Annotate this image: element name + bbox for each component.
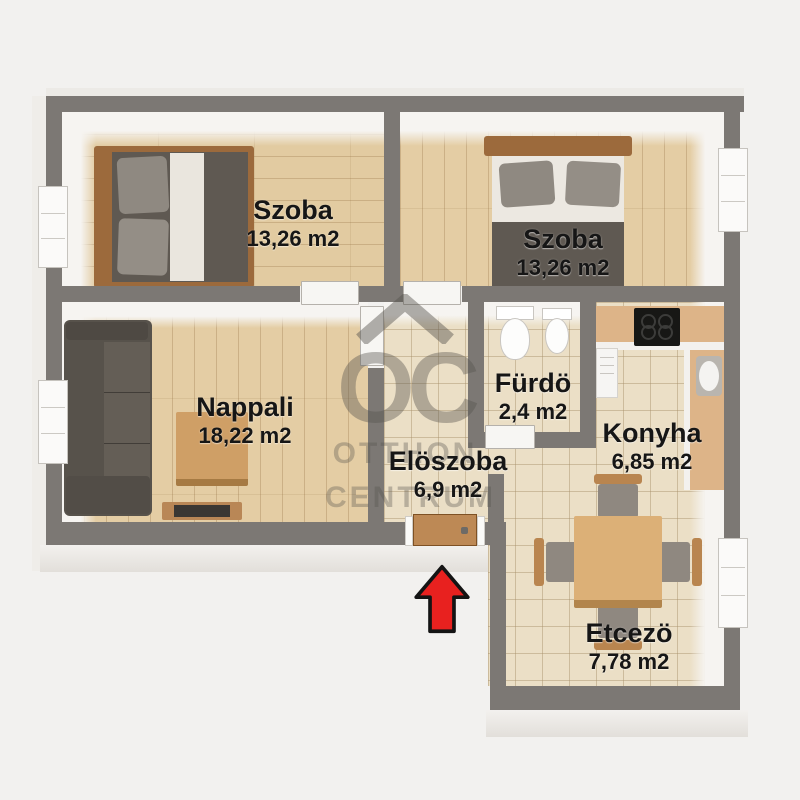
pillow [117,218,169,276]
door-bedroom-1 [301,281,359,305]
room-name: Szoba [203,195,383,225]
room-area: 6,9 m2 [362,476,534,504]
room-name: Elöszoba [362,446,534,476]
room-area: 13,26 m2 [203,225,383,253]
pillow [565,161,621,208]
sofa [64,320,152,516]
bed-headboard [484,136,632,156]
door-bedroom-2 [403,281,461,305]
room-name: Fürdö [472,368,594,398]
door-handle [461,527,468,534]
room-name: Nappali [155,392,335,422]
sink [696,356,722,396]
outer-wall-face [46,88,744,96]
room-area: 6,85 m2 [564,448,740,476]
chair-backrest [692,538,702,586]
pillow [499,160,556,208]
entrance-door-jamb [477,516,485,546]
room-area: 18,22 m2 [155,422,335,450]
sofa-chaise [66,476,150,514]
wall-left [46,96,62,545]
chair-backrest [534,538,544,586]
toilet-bowl [500,318,530,360]
cooktop [634,308,680,346]
window-dining-room [718,538,748,628]
burner [641,325,656,340]
wall-bedroom-divider [384,112,400,286]
outer-wall-face [486,710,748,737]
room-label-hallway: Elöszoba 6,9 m2 [362,446,534,504]
room-label-dining-room: Etcezö 7,78 m2 [541,618,717,676]
dining-table [574,516,662,608]
wall-dining-left [490,545,506,686]
room-area: 7,78 m2 [541,648,717,676]
sink-basin [699,361,719,391]
door-living-room [360,306,384,366]
wall-middle [358,286,404,302]
wall-middle [462,286,724,302]
room-label-living-room: Nappali 18,22 m2 [155,392,335,450]
window-living-room [38,380,68,464]
vent-line [600,357,614,358]
bidet [542,308,572,356]
range-hood [596,348,618,398]
room-name: Konyha [564,418,740,448]
cushion-seam [104,392,150,393]
entrance-door-jamb [405,516,413,546]
entrance-arrow [412,564,472,634]
chair-seat [598,484,638,518]
sofa-armrest [66,322,148,340]
tv-bench [162,502,242,520]
bidet-bowl [545,318,569,354]
bed-sheet [170,153,204,281]
room-name: Szoba [473,224,653,254]
window-bedroom-2 [718,148,748,232]
room-name: Etcezö [541,618,717,648]
sofa-seat-cushions [104,342,150,494]
room-area: 13,26 m2 [473,254,653,282]
entrance-door [413,514,477,546]
toilet [496,306,534,362]
room-label-bedroom-1: Szoba 13,26 m2 [203,195,383,253]
entrance-arrow-icon [412,564,472,634]
window-bedroom-1 [38,186,68,268]
tv [174,505,230,517]
outer-wall-face [32,96,46,571]
room-label-bedroom-2: Szoba 13,26 m2 [473,224,653,282]
dining-chair [594,474,642,520]
burner [658,325,673,340]
wall-dining-bottom [490,686,740,710]
wall-middle [62,286,300,302]
cushion-seam [104,443,150,444]
room-label-kitchen: Konyha 6,85 m2 [564,418,740,476]
vent-line [600,365,614,366]
vent-line [600,373,614,374]
pillow [117,156,170,215]
floor-plan: OC OTTHON CENTRUM Szoba 13,26 m2 Szoba 1… [0,0,800,800]
wall-top [46,96,744,112]
dining-chair [656,538,702,586]
